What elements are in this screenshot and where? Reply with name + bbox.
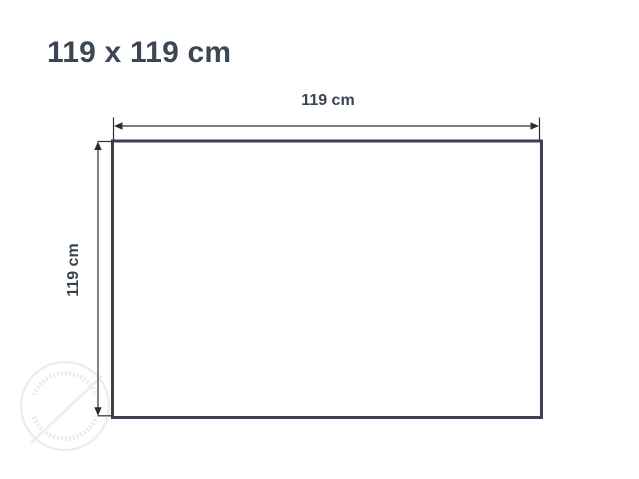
watermark-bottom-arc-text [34, 417, 96, 439]
watermark-stamp [21, 362, 109, 450]
frame-outline [113, 141, 542, 418]
arrow-up-icon [94, 142, 101, 151]
height-dimension-label: 119 cm [65, 220, 85, 320]
dimension-diagram [0, 0, 639, 479]
arrow-down-icon [94, 407, 101, 416]
arrow-left-icon [114, 122, 123, 129]
width-dimension [114, 118, 540, 141]
width-dimension-label: 119 cm [278, 92, 378, 110]
product-dimension-view: 119 x 119 cm 119 cm 119 cm [0, 0, 639, 479]
arrow-right-icon [531, 122, 540, 129]
